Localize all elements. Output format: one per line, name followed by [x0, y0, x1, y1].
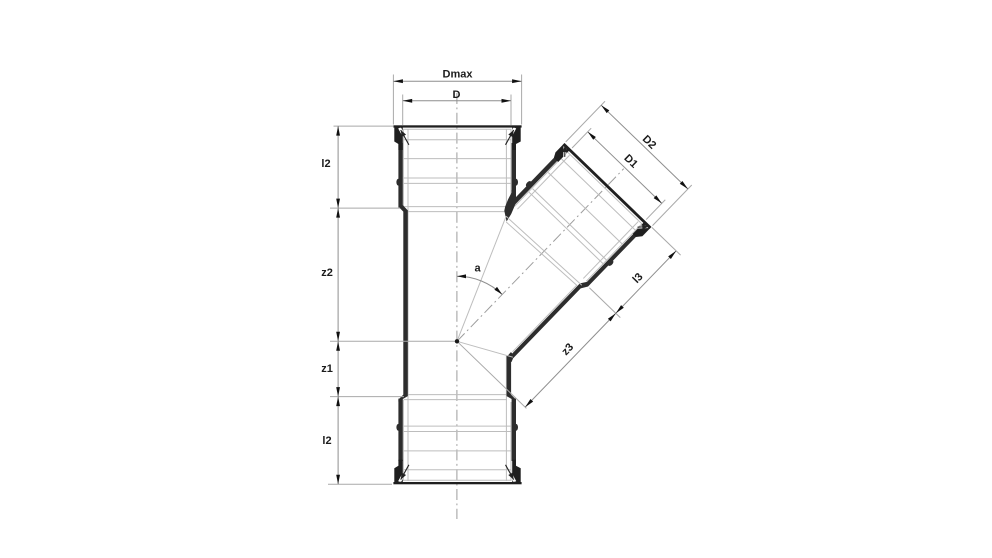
- svg-text:D: D: [453, 89, 461, 101]
- svg-text:z1: z1: [321, 363, 333, 375]
- svg-text:l2: l2: [321, 158, 330, 170]
- svg-text:l2: l2: [322, 435, 331, 447]
- svg-text:z2: z2: [321, 267, 333, 279]
- svg-text:Dmax: Dmax: [443, 69, 474, 81]
- svg-text:a: a: [474, 263, 481, 275]
